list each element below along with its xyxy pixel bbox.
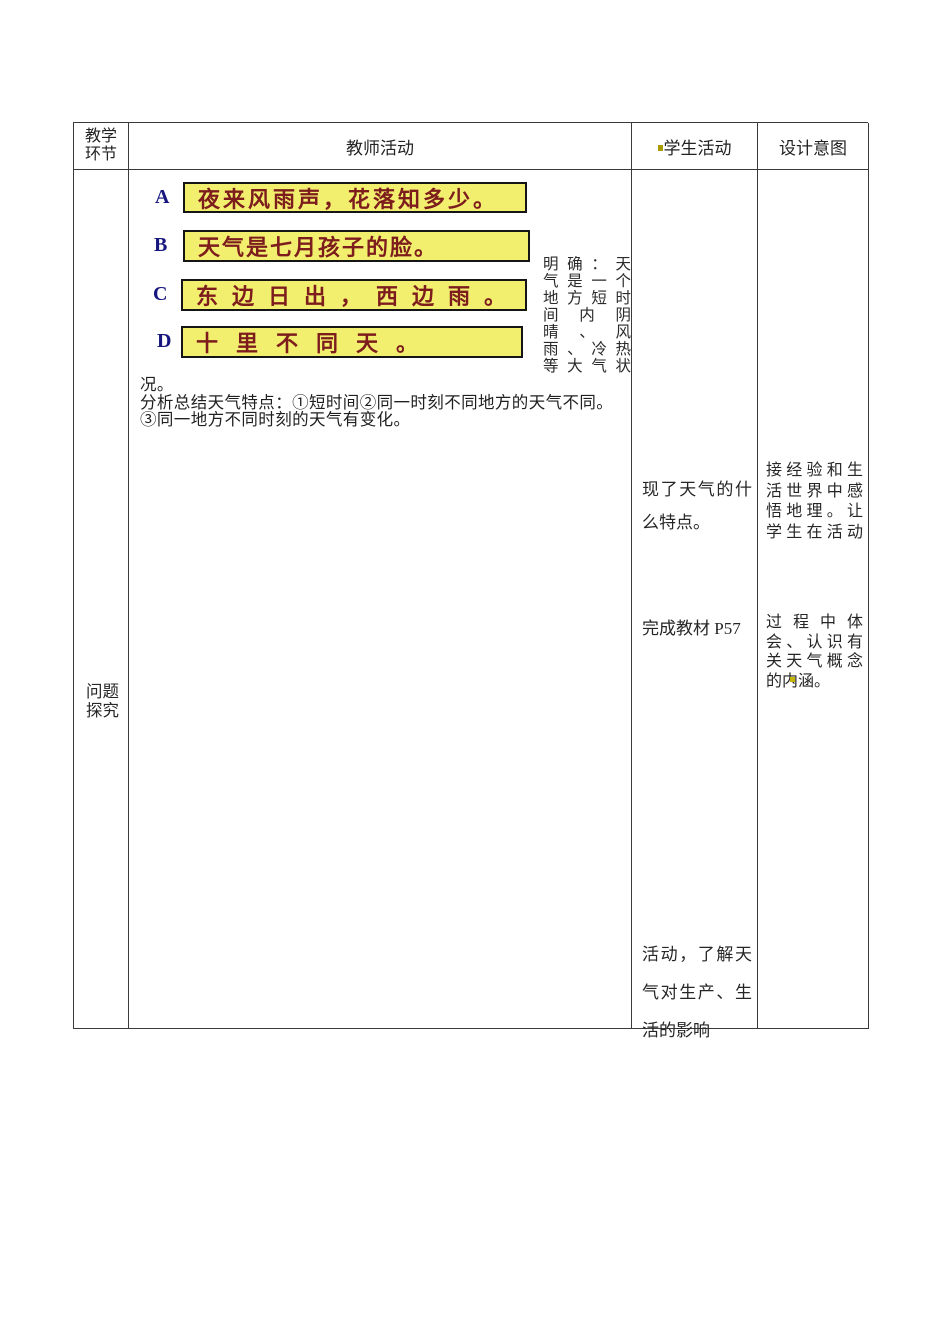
body-cell-design-intent: 接经验和生活世界中感悟地理。让学生在活动 过程中体会、认识有关天气概念的内涵。 (758, 170, 869, 1029)
intent-note-weather-concept: 过程中体会、认识有关天气概念的内涵。 (766, 613, 863, 691)
header-teaching-stage-label: 教学环节 (85, 128, 117, 164)
header-cell-student-activity: 学生活动 (632, 123, 758, 170)
header-cell-design-intent: 设计意图 (758, 123, 869, 170)
scan-artifact-dot-icon (658, 145, 663, 151)
header-design-intent-label: 设计意图 (779, 134, 847, 159)
weather-definition-note: 明确：天气是一个地方短时间内阴晴、风雨、冷热等大气状 (543, 256, 631, 375)
student-note-weather-features: 现了天气的什么特点。 (642, 473, 752, 539)
option-b-box: 天气是七月孩子的脸。 (183, 230, 530, 262)
weather-characteristics-summary: 况。分析总结天气特点：①短时间②同一时刻不同地方的天气不同。③同一地方不同时刻的… (140, 376, 636, 429)
intent-note-life-experience: 接经验和生活世界中感悟地理。让学生在活动 (766, 461, 863, 543)
option-a-box: 夜来风雨声，花落知多少。 (183, 182, 527, 213)
stage-problem-inquiry-label: 问题探究 (86, 682, 126, 720)
header-student-activity-label: 学生活动 (664, 134, 732, 159)
option-b-label: B (154, 234, 167, 257)
option-a-label: A (155, 186, 169, 209)
body-cell-student-activity: 现了天气的什么特点。 完成教材 P57 活动，了解天气对生产、生活的影响 (632, 170, 758, 1029)
option-c-box: 东边日出，西边雨。 (181, 279, 527, 311)
body-cell-teacher-activity: A 夜来风雨声，花落知多少。 B 天气是七月孩子的脸。 C 东边日出，西边雨。 … (129, 170, 632, 1029)
student-note-activity-impact: 活动，了解天气对生产、生活的影响 (642, 936, 752, 1050)
lesson-plan-table: 教学环节 教师活动 学生活动 设计意图 问题探究 A 夜来风雨声，花落知多少。 … (73, 122, 868, 1029)
header-cell-teaching-stage: 教学环节 (74, 123, 129, 170)
option-d-box: 十里不同天。 (181, 326, 523, 358)
option-c-label: C (153, 283, 167, 306)
header-teacher-activity-label: 教师活动 (346, 134, 414, 159)
scan-artifact-dot-icon (790, 677, 795, 682)
header-cell-teacher-activity: 教师活动 (129, 123, 632, 170)
student-note-textbook-p57: 完成教材 P57 (642, 619, 754, 639)
body-cell-teaching-stage: 问题探究 (74, 170, 129, 1029)
option-d-label: D (157, 330, 171, 353)
